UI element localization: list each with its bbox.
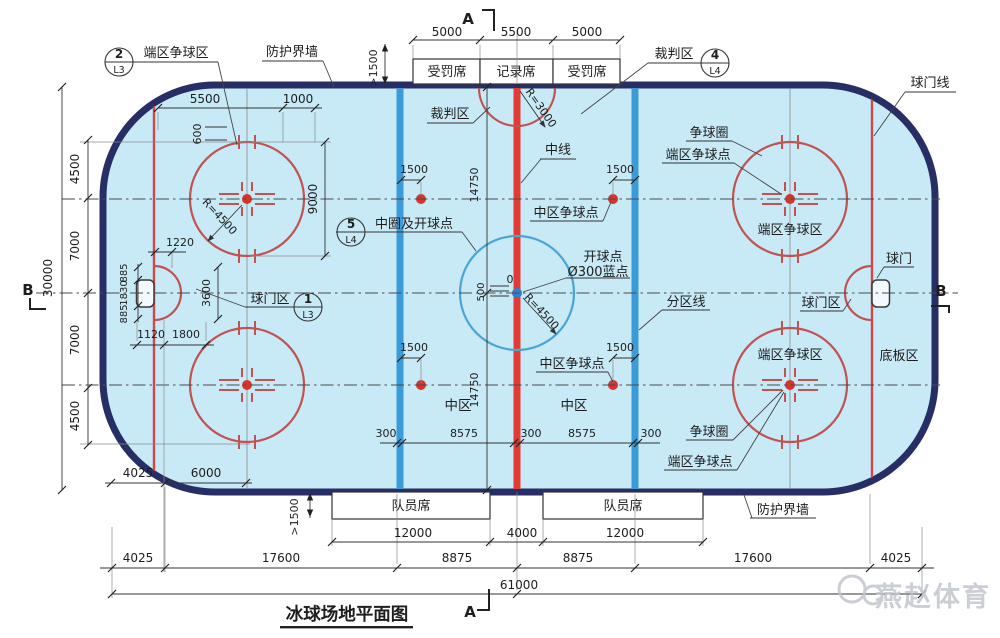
label-faceoff-point: 开球点: [583, 250, 622, 265]
label-referee-area-outer: 裁判区: [654, 46, 693, 62]
scorer-bench-label: 记录席: [496, 64, 535, 80]
label-end-faceoff-area-topright: 端区争球区: [757, 223, 822, 238]
callout-2-sheet: L3: [113, 65, 124, 76]
dim-gt1500-top: >1500: [367, 49, 380, 86]
section-mark-a-top-bracket: [482, 10, 494, 31]
title-underline: [280, 626, 413, 628]
callout-4-sheet: L4: [709, 66, 720, 77]
penalty-bench-left-label: 受罚席: [427, 64, 466, 80]
dim-12000-right: 12000: [606, 526, 644, 540]
dim-9000: 9000: [306, 184, 320, 215]
section-mark-b-left: B: [22, 281, 33, 299]
dim-600: 600: [191, 124, 204, 145]
dim-4000: 4000: [507, 526, 538, 540]
callout-2-num: 2: [115, 47, 123, 61]
section-mark-a-top: A: [462, 10, 474, 28]
dim-4025-corner: 4025: [123, 466, 154, 480]
label-end-faceoff-area-bottomright: 端区争球区: [757, 348, 822, 363]
label-referee-area-inner: 裁判区: [430, 106, 469, 122]
dim-1500-bl: 1500: [400, 341, 428, 354]
label-neutral-spot-top: 中区争球点: [533, 206, 598, 221]
label-end-faceoff-area-topleft: 端区争球区: [143, 46, 208, 61]
callout-1-sheet: L3: [302, 310, 313, 321]
label-goal-area-right: 球门区: [801, 296, 840, 311]
label-blue-dot: Ø300蓝点: [567, 265, 628, 280]
dim-5000-right: 5000: [572, 25, 603, 39]
dim-1220: 1220: [166, 236, 194, 249]
dim-885-bottom: 885: [119, 304, 130, 323]
watermark-text: 燕赵体育: [875, 581, 991, 613]
dim-1500-tl: 1500: [400, 163, 428, 176]
label-end-faceoff-spot-bottom: 端区争球点: [667, 455, 732, 470]
dim-3600: 3600: [200, 279, 213, 307]
dim-4500-top: 4500: [68, 154, 82, 185]
dim-8575-2: 8575: [568, 427, 596, 440]
penalty-bench-right-label: 受罚席: [567, 64, 606, 80]
callout-5-sheet: L4: [345, 235, 356, 246]
dim-5000-left: 5000: [432, 25, 463, 39]
label-goal-area-left: 球门区: [250, 292, 289, 307]
dim-1500-tr: 1500: [606, 163, 634, 176]
dim-300-2: 300: [521, 427, 542, 440]
dim-4025-b1: 4025: [123, 551, 154, 565]
label-goal-right: 球门: [886, 252, 912, 267]
dim-1000: 1000: [283, 92, 314, 106]
dim-8575-1: 8575: [450, 427, 478, 440]
dim-12000-left: 12000: [394, 526, 432, 540]
callout-4-num: 4: [711, 48, 719, 62]
dim-8875-b2: 8875: [563, 551, 594, 565]
dim-17600-b1: 17600: [262, 551, 300, 565]
label-neutral-spot-bottom: 中区争球点: [539, 357, 604, 372]
dim-17600-b2: 17600: [734, 551, 772, 565]
dim-4500-bottom: 4500: [68, 401, 82, 432]
label-end-faceoff-spot-top: 端区争球点: [665, 148, 730, 163]
callout-1-num: 1: [304, 292, 312, 306]
callout-5-num: 5: [347, 217, 355, 231]
dim-5500-top: 5500: [501, 25, 532, 39]
label-faceoff-circle-bottom: 争球圈: [689, 425, 728, 440]
dim-1800: 1800: [172, 328, 200, 341]
dim-gt1500-bottom: >1500: [288, 498, 301, 535]
dim-7000-top: 7000: [68, 231, 82, 262]
page-title: 冰球场地平面图: [286, 604, 409, 625]
penalty-and-scorer-benches: 受罚席 记录席 受罚席: [413, 59, 620, 84]
label-protective-wall-bottom: 防护界墙: [757, 502, 809, 518]
dim-14750-top: 14750: [468, 168, 481, 203]
ice-hockey-rink-plan: 受罚席 记录席 受罚席 队员席 队员席 2 L3 4 L4 5 L4 1 L3: [0, 0, 1000, 638]
dim-0: 0: [507, 273, 514, 286]
watermark-logo-bubble-large: [839, 576, 865, 602]
section-mark-b-left-bracket: [30, 298, 46, 309]
label-center-line: 中线: [545, 143, 571, 158]
section-mark-a-bottom: A: [464, 603, 476, 621]
label-center-circle-point: 中圈及开球点: [375, 217, 453, 232]
players-benches: 队员席 队员席: [332, 492, 703, 519]
dim-500: 500: [476, 282, 487, 301]
section-mark-b-right: B: [935, 282, 946, 300]
section-mark-a-bottom-bracket: [477, 589, 489, 610]
dim-6000: 6000: [191, 466, 222, 480]
dim-300-3: 300: [641, 427, 662, 440]
dim-1500-br: 1500: [606, 341, 634, 354]
label-board-area-right: 底板区: [879, 348, 918, 364]
label-protective-wall-top: 防护界墙: [266, 44, 318, 60]
dim-14750-bottom: 14750: [468, 373, 481, 408]
dim-300-1: 300: [376, 427, 397, 440]
dim-1120: 1120: [137, 328, 165, 341]
label-faceoff-circle-top: 争球圈: [689, 126, 728, 141]
drawing-title: 冰球场地平面图: [280, 604, 413, 628]
label-zone-line: 分区线: [666, 295, 705, 310]
dim-7000-bottom: 7000: [68, 325, 82, 356]
drawing-canvas: 受罚席 记录席 受罚席 队员席 队员席 2 L3 4 L4 5 L4 1 L3: [0, 0, 1000, 638]
watermark: 燕赵体育: [839, 576, 991, 613]
dim-61000: 61000: [500, 578, 538, 592]
label-goal-line: 球门线: [910, 76, 949, 91]
dim-8875-b1: 8875: [442, 551, 473, 565]
dim-4025-b2: 4025: [881, 551, 912, 565]
dim-30000: 30000: [41, 259, 55, 297]
players-bench-right-label: 队员席: [603, 498, 642, 514]
label-neutral-zone-right: 中区: [561, 398, 588, 414]
dim-1830: 1830: [119, 280, 130, 305]
dim-5500-circle: 5500: [190, 92, 221, 106]
dim-885-top: 885: [119, 263, 130, 282]
